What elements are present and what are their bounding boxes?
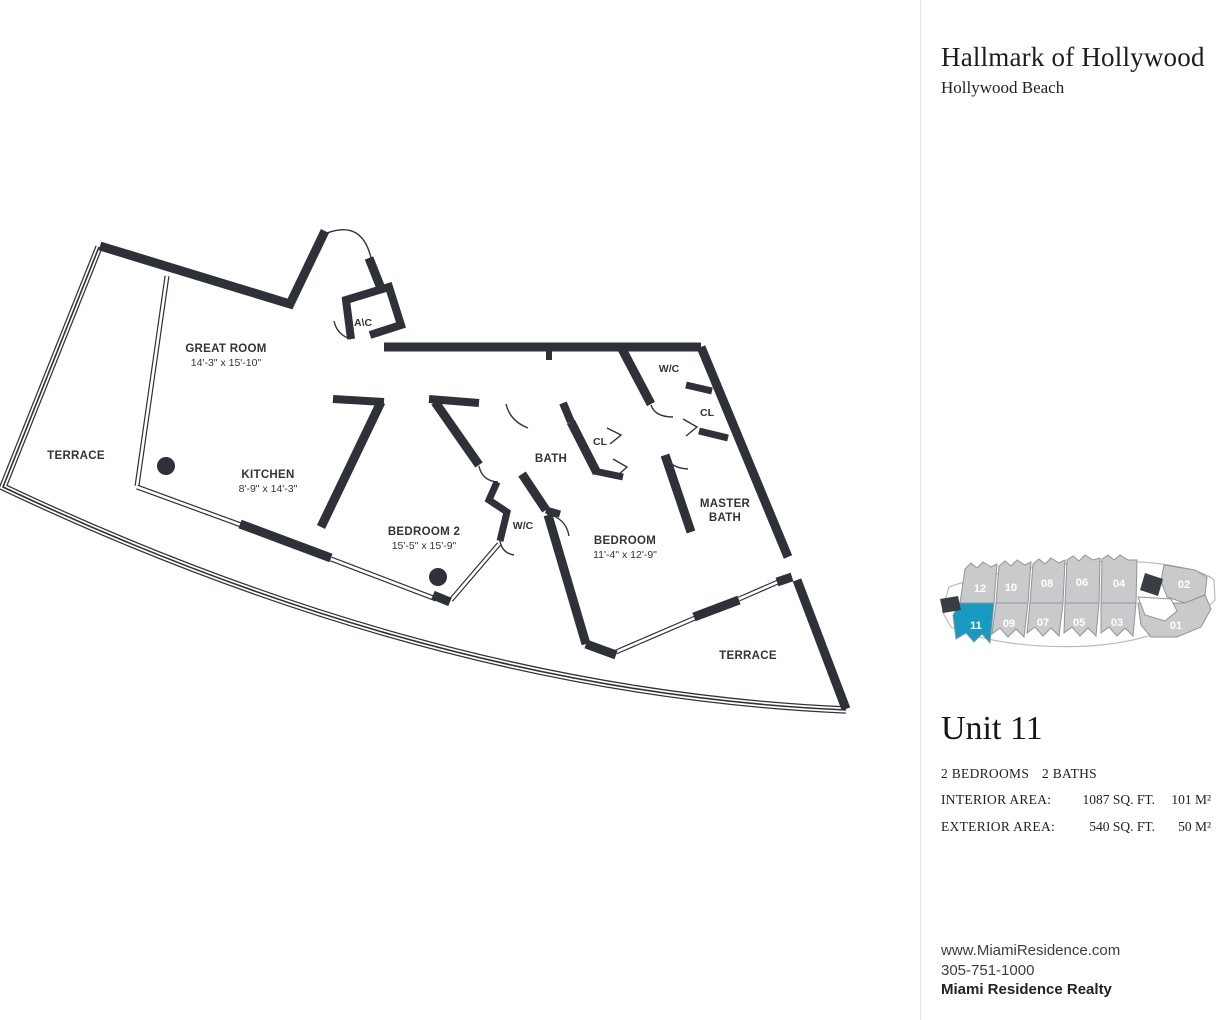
bedroom2-label: BEDROOM 2 (388, 526, 460, 538)
column (157, 457, 175, 475)
keyplan-label-09: 09 (1003, 618, 1015, 630)
info-sidebar: Hallmark of Hollywood Hollywood Beach 12… (940, 0, 1217, 1020)
keyplan-stair-left (940, 596, 961, 613)
keyplan: 12 10 08 06 04 02 11 09 07 05 03 01 (939, 553, 1217, 653)
terrace-left-label: TERRACE (47, 450, 105, 462)
great-room-label: GREAT ROOM (185, 343, 266, 355)
ac-label: A\C (354, 317, 373, 329)
interior-area-row: INTERIOR AREA: 1087 SQ. FT. 101 M² (941, 792, 1211, 810)
bedroom2-dims: 15'-5" x 15'-9" (392, 540, 457, 552)
phone-text: 305-751-1000 (941, 961, 1120, 981)
keyplan-label-02: 02 (1178, 579, 1190, 591)
master-bath-label-2: BATH (709, 512, 741, 524)
keyplan-label-01: 01 (1170, 620, 1182, 632)
interior-area-sqft: 1087 SQ. FT. (1082, 792, 1155, 808)
master-bath-label-1: MASTER (700, 498, 751, 510)
website-text: www.MiamiResidence.com (941, 941, 1120, 961)
keyplan-label-05: 05 (1073, 617, 1085, 629)
vertical-divider (920, 0, 921, 1020)
column (429, 568, 447, 586)
exterior-area-row: EXTERIOR AREA: 540 SQ. FT. 50 M² (941, 819, 1211, 837)
keyplan-label-08: 08 (1041, 578, 1053, 590)
exterior-area-sqft: 540 SQ. FT. (1089, 819, 1155, 835)
keyplan-label-11: 11 (970, 620, 982, 632)
terrace-right-label: TERRACE (719, 650, 777, 662)
wc-master-label: W/C (659, 363, 680, 375)
keyplan-label-06: 06 (1076, 577, 1088, 589)
keyplan-label-03: 03 (1111, 617, 1123, 629)
exterior-area-m2: 50 M² (1178, 819, 1211, 835)
baths-value: 2 BATHS (1042, 766, 1097, 782)
wc-bedroom2-label: W/C (513, 520, 534, 532)
bedroom-label: BEDROOM (594, 535, 656, 547)
unit-name: Unit 11 (941, 710, 1043, 748)
bedrooms-value: 2 BEDROOMS (941, 766, 1029, 782)
keyplan-stair-right (1140, 573, 1163, 596)
bath-label: BATH (535, 453, 567, 465)
building-subtitle: Hollywood Beach (941, 78, 1064, 98)
contact-block: www.MiamiResidence.com 305-751-1000 Miam… (941, 941, 1120, 1000)
terrace-railing (3, 247, 846, 710)
kitchen-dims: 8'-9" x 14'-3" (239, 483, 298, 495)
bed-bath-row: 2 BEDROOMS 2 BATHS (941, 766, 1211, 784)
cl-master-label: CL (700, 407, 715, 419)
ac-closet (346, 287, 401, 339)
keyplan-label-07: 07 (1037, 617, 1049, 629)
keyplan-label-10: 10 (1005, 582, 1017, 594)
interior-area-m2: 101 M² (1171, 792, 1211, 808)
interior-area-label: INTERIOR AREA: (941, 792, 1051, 808)
kitchen-label: KITCHEN (241, 469, 294, 481)
keyplan-label-12: 12 (974, 583, 986, 595)
cl-bath-label: CL (593, 436, 608, 448)
exterior-area-label: EXTERIOR AREA: (941, 819, 1055, 835)
great-room-dims: 14'-3" x 15'-10" (191, 357, 262, 369)
company-name: Miami Residence Realty (941, 980, 1120, 1000)
building-title: Hallmark of Hollywood (941, 42, 1205, 73)
bedroom-dims: 11'-4" x 12'-9" (593, 549, 657, 561)
floor-plan: TERRACE GREAT ROOM 14'-3" x 15'-10" KITC… (0, 0, 920, 1020)
keyplan-label-04: 04 (1113, 578, 1126, 590)
window-walls (137, 276, 778, 652)
walls (100, 231, 846, 709)
floorplan-sheet: { "header": { "title": "Hallmark of Holl… (0, 0, 1217, 1020)
